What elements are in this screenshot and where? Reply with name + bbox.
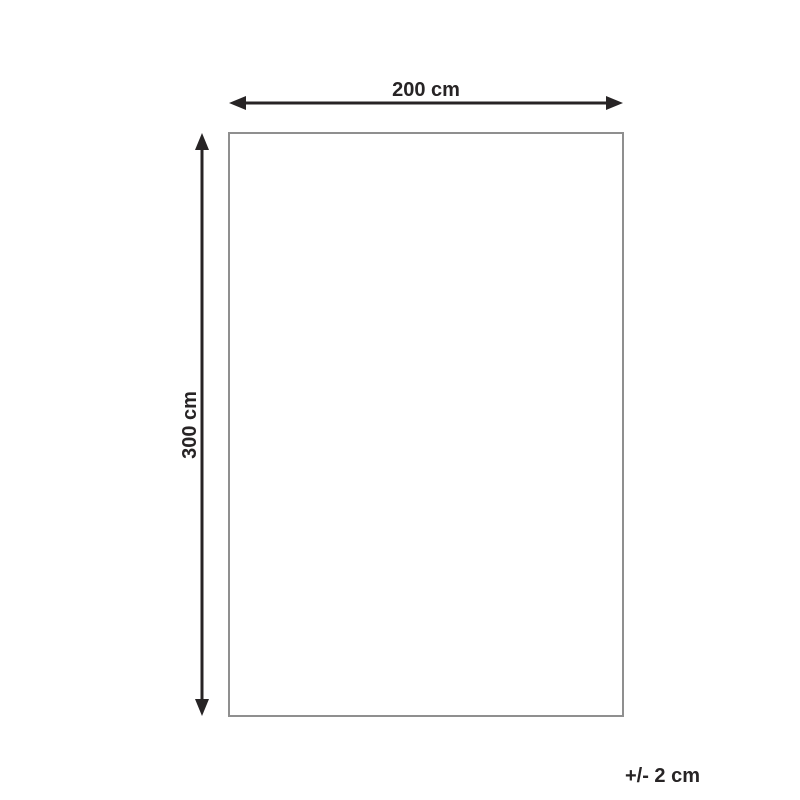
width-arrow-left-head-icon <box>229 96 246 110</box>
diagram-svg: 200 cm 300 cm +/- 2 cm <box>0 0 800 800</box>
height-arrow-top-head-icon <box>195 133 209 150</box>
height-arrow-bottom-head-icon <box>195 699 209 716</box>
tolerance-label: +/- 2 cm <box>625 765 700 787</box>
height-label: 300 cm <box>179 391 201 459</box>
width-label: 200 cm <box>392 79 460 101</box>
width-arrow-right-head-icon <box>606 96 623 110</box>
dimension-diagram: 200 cm 300 cm +/- 2 cm <box>0 0 800 800</box>
product-outline-rect <box>229 133 623 716</box>
